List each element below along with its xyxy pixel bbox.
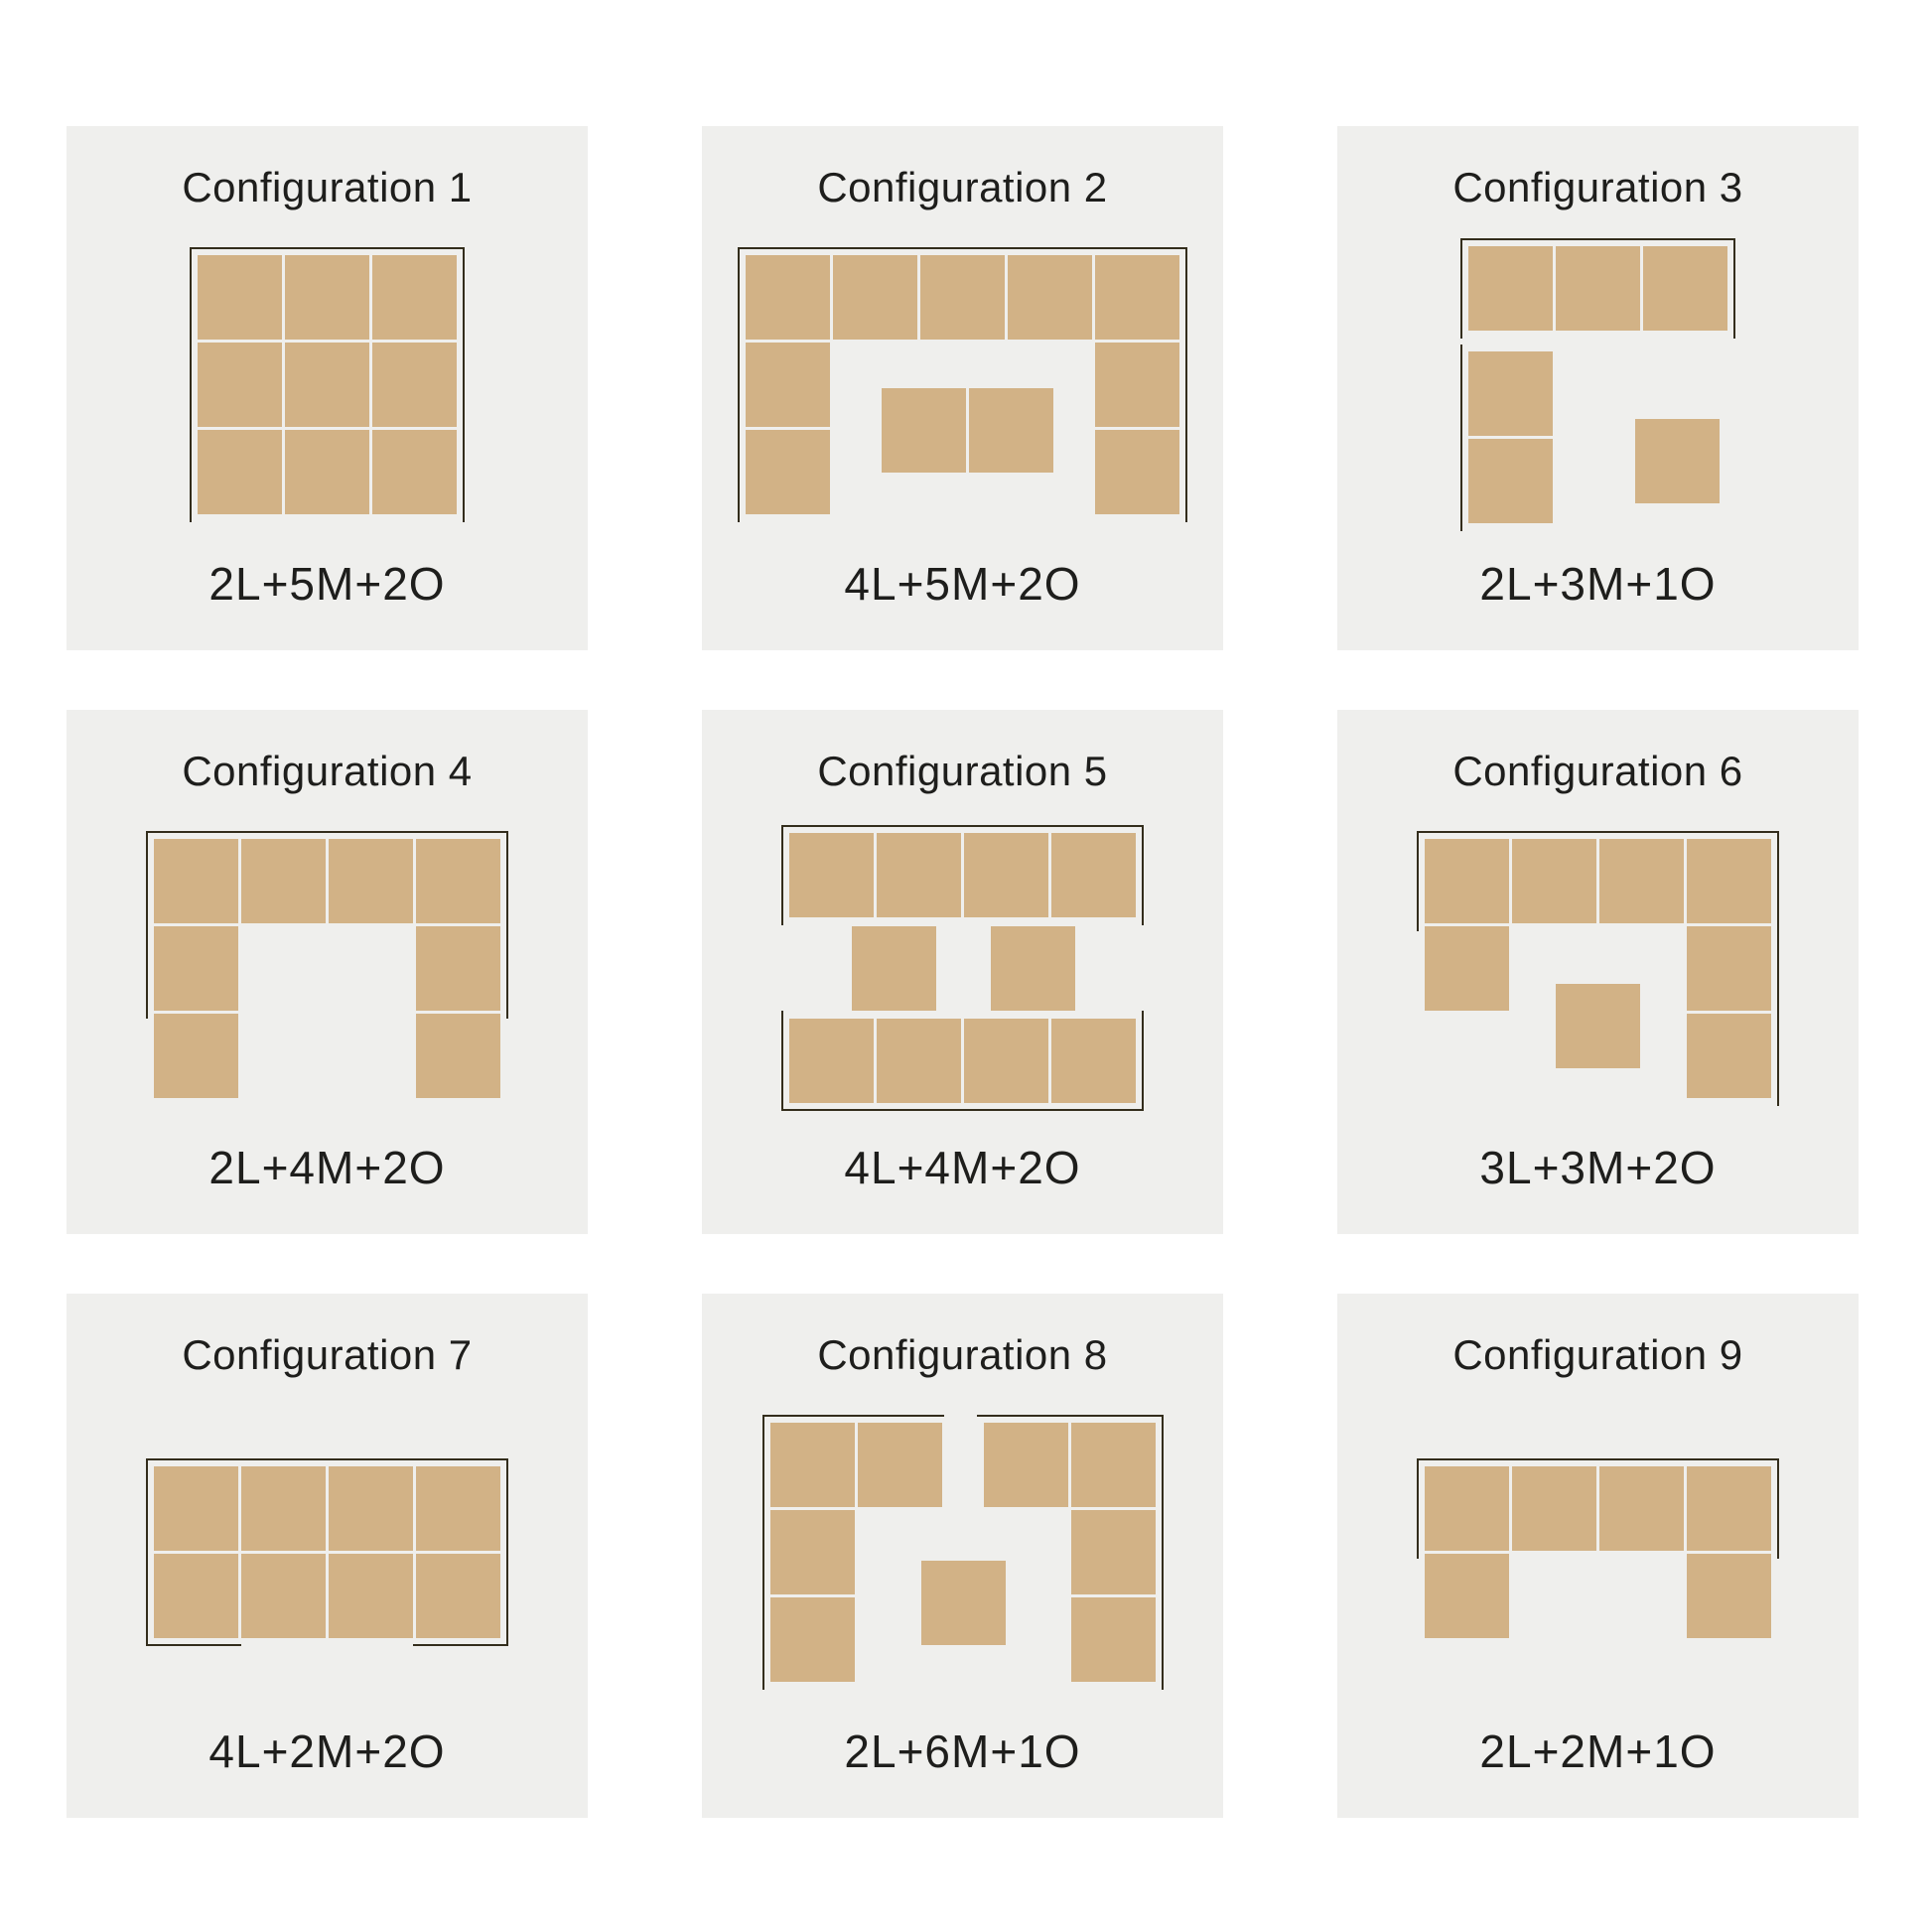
sofa-diagram [146, 1458, 508, 1646]
sofa-diagram [738, 247, 1187, 522]
sofa-outline-segment [463, 247, 465, 522]
sofa-module [416, 1014, 500, 1098]
sofa-outline-segment [413, 1644, 508, 1646]
sofa-module [746, 343, 830, 427]
sofa-diagram [1417, 1458, 1779, 1646]
sofa-module [1008, 255, 1092, 340]
sofa-module [1425, 1554, 1509, 1638]
sofa-outline-segment [762, 1415, 764, 1690]
sofa-module [372, 343, 457, 427]
sofa-outline-segment [781, 1011, 783, 1111]
sofa-module [877, 1019, 961, 1103]
card-title: Configuration 6 [1452, 748, 1742, 795]
sofa-diagram [1417, 831, 1779, 1106]
sofa-module [329, 1466, 413, 1551]
sofa-outline-segment [1417, 1458, 1419, 1559]
sofa-diagram [781, 825, 1144, 1111]
sofa-module [1095, 255, 1179, 340]
sofa-outline-segment [190, 247, 465, 249]
sofa-module [833, 255, 917, 340]
sofa-module [154, 926, 238, 1011]
module-count-label: 2L+4M+2O [208, 1141, 445, 1194]
sofa-outline-segment [146, 831, 148, 1019]
sofa-module [1635, 419, 1720, 503]
sofa-module [858, 1423, 942, 1507]
sofa-module [416, 926, 500, 1011]
sofa-module [154, 839, 238, 923]
sofa-module [789, 1019, 874, 1103]
sofa-module [1643, 246, 1727, 331]
card-title: Configuration 1 [182, 164, 472, 211]
sofa-module [329, 1554, 413, 1638]
sofa-outline-segment [1460, 345, 1462, 531]
module-count-label: 4L+2M+2O [208, 1725, 445, 1778]
sofa-outline-segment [146, 831, 508, 833]
sofa-outline-segment [1777, 1458, 1779, 1559]
sofa-module [416, 839, 500, 923]
module-count-label: 2L+2M+1O [1479, 1725, 1716, 1778]
configuration-card: Configuration 2 4L+5M+2O [702, 126, 1223, 650]
diagram-area [1337, 795, 1859, 1141]
sofa-outline-segment [762, 1415, 944, 1417]
module-count-label: 4L+5M+2O [844, 557, 1080, 611]
configuration-card: Configuration 4 2L+4M+2O [67, 710, 588, 1234]
card-title: Configuration 3 [1452, 164, 1742, 211]
sofa-module [198, 343, 282, 427]
sofa-outline-segment [146, 1644, 241, 1646]
diagram-area [702, 795, 1223, 1141]
sofa-module [1556, 984, 1640, 1068]
configuration-card: Configuration 9 2L+2M+1O [1337, 1294, 1859, 1818]
configuration-card: Configuration 3 2L+3M+1O [1337, 126, 1859, 650]
module-count-label: 2L+5M+2O [208, 557, 445, 611]
sofa-outline-segment [781, 825, 783, 925]
sofa-outline-segment [1417, 831, 1779, 833]
sofa-module [241, 839, 326, 923]
sofa-module [852, 926, 936, 1011]
sofa-module [969, 388, 1053, 473]
sofa-module [984, 1423, 1068, 1507]
configuration-card: Configuration 8 2L+6M+1O [702, 1294, 1223, 1818]
sofa-outline-segment [506, 831, 508, 1019]
sofa-module [154, 1014, 238, 1098]
sofa-module [416, 1554, 500, 1638]
configuration-grid: Configuration 1 2L+5M+2O Configuration 2… [67, 126, 1859, 1818]
sofa-outline-segment [1162, 1415, 1164, 1690]
sofa-module [1599, 1466, 1684, 1551]
sofa-module [964, 833, 1048, 917]
sofa-module [1425, 839, 1509, 923]
sofa-module [1599, 839, 1684, 923]
sofa-module [1095, 343, 1179, 427]
configuration-card: Configuration 6 3L+3M+2O [1337, 710, 1859, 1234]
sofa-module [1687, 926, 1771, 1011]
sofa-diagram [762, 1415, 1164, 1690]
sofa-module [285, 430, 369, 514]
sofa-module [789, 833, 874, 917]
sofa-module [770, 1423, 855, 1507]
sofa-module [1071, 1510, 1156, 1594]
sofa-module [746, 255, 830, 340]
diagram-area [67, 1379, 588, 1725]
sofa-module [154, 1466, 238, 1551]
diagram-area [67, 795, 588, 1141]
sofa-module [285, 343, 369, 427]
sofa-module [1051, 833, 1136, 917]
sofa-module [198, 255, 282, 340]
sofa-module [241, 1466, 326, 1551]
sofa-module [154, 1554, 238, 1638]
sofa-module [1425, 926, 1509, 1011]
diagram-area [702, 1379, 1223, 1725]
sofa-outline-segment [1777, 831, 1779, 1106]
sofa-outline-segment [738, 247, 740, 522]
configuration-card: Configuration 1 2L+5M+2O [67, 126, 588, 650]
sofa-module [770, 1510, 855, 1594]
sofa-outline-segment [1142, 1011, 1144, 1111]
sofa-module [964, 1019, 1048, 1103]
sofa-module [372, 255, 457, 340]
sofa-outline-segment [146, 1458, 148, 1646]
sofa-module [416, 1466, 500, 1551]
sofa-module [329, 839, 413, 923]
sofa-module [770, 1597, 855, 1682]
module-count-label: 2L+6M+1O [844, 1725, 1080, 1778]
module-count-label: 4L+4M+2O [844, 1141, 1080, 1194]
sofa-module [1468, 351, 1553, 436]
sofa-outline-segment [781, 1109, 1144, 1111]
sofa-module [1556, 246, 1640, 331]
sofa-module [746, 430, 830, 514]
sofa-outline-segment [781, 825, 1144, 827]
sofa-module [1071, 1597, 1156, 1682]
module-count-label: 2L+3M+1O [1479, 557, 1716, 611]
sofa-diagram [146, 831, 508, 1106]
module-count-label: 3L+3M+2O [1479, 1141, 1716, 1194]
sofa-outline-segment [738, 247, 1187, 249]
sofa-diagram [1460, 238, 1735, 531]
card-title: Configuration 9 [1452, 1331, 1742, 1379]
sofa-outline-segment [1460, 238, 1462, 339]
sofa-module [877, 833, 961, 917]
sofa-outline-segment [190, 247, 192, 522]
sofa-module [921, 1561, 1006, 1645]
card-title: Configuration 4 [182, 748, 472, 795]
diagram-area [67, 211, 588, 557]
sofa-module [1071, 1423, 1156, 1507]
sofa-module [882, 388, 966, 473]
card-title: Configuration 2 [817, 164, 1107, 211]
sofa-outline-segment [506, 1458, 508, 1646]
sofa-module [1095, 430, 1179, 514]
sofa-module [1687, 1466, 1771, 1551]
sofa-module [1687, 1554, 1771, 1638]
sofa-outline-segment [146, 1458, 508, 1460]
sofa-outline-segment [1142, 825, 1144, 925]
sofa-module [920, 255, 1005, 340]
sofa-outline-segment [977, 1415, 1164, 1417]
sofa-outline-segment [1733, 238, 1735, 339]
card-title: Configuration 5 [817, 748, 1107, 795]
sofa-module [1512, 1466, 1596, 1551]
sofa-module [198, 430, 282, 514]
sofa-module [241, 1554, 326, 1638]
configuration-card: Configuration 7 4L+2M+2O [67, 1294, 588, 1818]
sofa-outline-segment [1417, 1458, 1779, 1460]
sofa-outline-segment [1460, 238, 1735, 240]
sofa-module [1687, 1014, 1771, 1098]
sofa-outline-segment [1417, 831, 1419, 931]
sofa-diagram [190, 247, 465, 522]
card-title: Configuration 7 [182, 1331, 472, 1379]
diagram-area [702, 211, 1223, 557]
diagram-area [1337, 211, 1859, 557]
sofa-module [1425, 1466, 1509, 1551]
sofa-module [1468, 246, 1553, 331]
card-title: Configuration 8 [817, 1331, 1107, 1379]
sofa-outline-segment [1185, 247, 1187, 522]
sofa-module [1687, 839, 1771, 923]
sofa-module [1468, 439, 1553, 523]
sofa-module [1051, 1019, 1136, 1103]
sofa-module [1512, 839, 1596, 923]
configuration-card: Configuration 5 4L+4M+2O [702, 710, 1223, 1234]
sofa-module [372, 430, 457, 514]
sofa-module [285, 255, 369, 340]
diagram-area [1337, 1379, 1859, 1725]
sofa-module [991, 926, 1075, 1011]
